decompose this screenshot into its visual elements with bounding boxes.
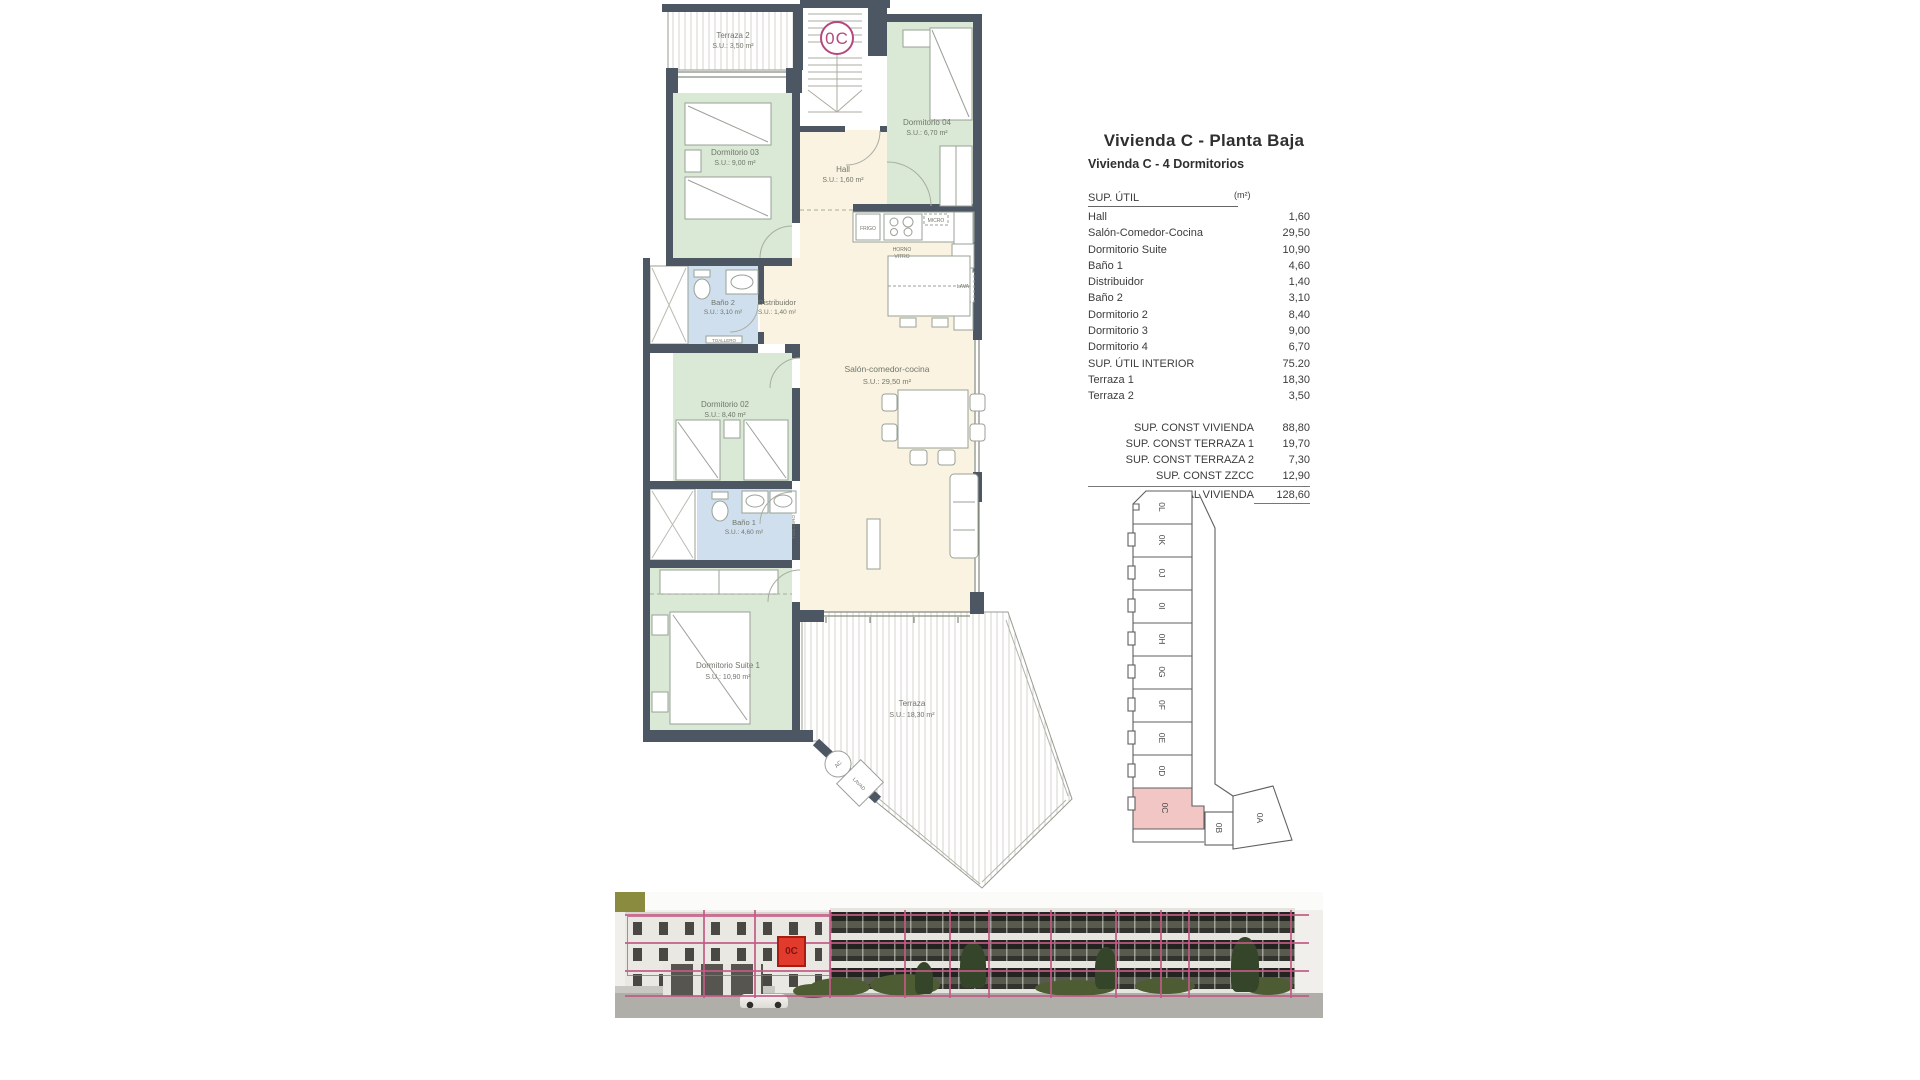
overlay-unit-line bbox=[1050, 910, 1052, 998]
hall-area: S.U.: 1,60 m² bbox=[822, 177, 864, 184]
header-label: SUP. ÚTIL bbox=[1088, 192, 1238, 207]
overlay-unit-line bbox=[988, 910, 990, 998]
unit-label: 0F bbox=[1157, 700, 1167, 710]
terraza2-name: Terraza 2 bbox=[716, 31, 750, 40]
overlay-floor-line bbox=[625, 970, 1309, 972]
terraza1-area: S.U.: 18,30 m² bbox=[889, 712, 935, 719]
unit-label: 0L bbox=[1157, 502, 1167, 512]
floor-plan-drawing: 0C bbox=[640, 0, 1085, 900]
summary-label: SUP. CONST ZZCC bbox=[1088, 468, 1254, 484]
summary-row: SUP. CONST TERRAZA 119,70 bbox=[1088, 436, 1310, 452]
building-photo: 0C bbox=[615, 892, 1323, 1018]
row-value: 18,30 bbox=[1254, 372, 1310, 388]
row-value: 3,10 bbox=[1254, 290, 1310, 306]
row-value: 1,60 bbox=[1254, 209, 1310, 225]
row-value: 9,00 bbox=[1254, 323, 1310, 339]
summary-row: SUP. CONST ZZCC12,90 bbox=[1088, 468, 1310, 484]
bano1-name: Baño 1 bbox=[732, 518, 756, 527]
key-plan: 0L 0K 0J 0I 0H 0G 0F 0E 0D 0C 0B 0A bbox=[1125, 488, 1305, 863]
dorm02-area: S.U.: 8,40 m² bbox=[704, 412, 746, 419]
unit-label: 0J bbox=[1157, 569, 1167, 578]
summary-rows: SUP. CONST VIVIENDA88,80 SUP. CONST TERR… bbox=[1088, 420, 1310, 485]
row-value: 29,50 bbox=[1254, 225, 1310, 241]
table-row: Terraza 23,50 bbox=[1088, 388, 1310, 404]
dorm04-area: S.U.: 6,70 m² bbox=[906, 130, 948, 137]
key-plan-drawing: 0L 0K 0J 0I 0H 0G 0F 0E 0D 0C 0B 0A bbox=[1125, 488, 1305, 863]
distribuidor-name: Distribuidor bbox=[758, 298, 796, 307]
table-row: Dormitorio 28,40 bbox=[1088, 307, 1310, 323]
dorm03-area: S.U.: 9,00 m² bbox=[714, 160, 756, 167]
row-label: Terraza 1 bbox=[1088, 372, 1134, 388]
table-row: Hall1,60 bbox=[1088, 209, 1310, 225]
header-unit: (m²) bbox=[1234, 190, 1251, 200]
info-panel: Vivienda C - Planta Baja Vivienda C - 4 … bbox=[1088, 131, 1320, 504]
unit-label: 0K bbox=[1157, 535, 1167, 546]
palm-tree bbox=[915, 962, 933, 994]
summary-value: 7,30 bbox=[1254, 452, 1310, 468]
unit-badge-label: 0C bbox=[825, 29, 849, 48]
row-value: 75.20 bbox=[1254, 356, 1310, 372]
floor-plan: 0C bbox=[640, 0, 1085, 900]
toallero-bano2-label: TOALLERO bbox=[712, 338, 736, 343]
overlay-unit-line bbox=[1290, 910, 1292, 998]
hall-name: Hall bbox=[836, 165, 850, 174]
table-row: Terraza 118,30 bbox=[1088, 372, 1310, 388]
overlay-floor-line bbox=[625, 995, 1309, 997]
unit-label: 0B bbox=[1214, 823, 1224, 834]
suite-name: Dormitorio Suite 1 bbox=[696, 661, 761, 670]
terraza2-floor bbox=[668, 10, 798, 70]
dorm03-name: Dormitorio 03 bbox=[711, 148, 760, 157]
summary-value: 19,70 bbox=[1254, 436, 1310, 452]
salon-name: Salón-comedor-cocina bbox=[844, 364, 929, 374]
row-value: 6,70 bbox=[1254, 339, 1310, 355]
terraza2-area: S.U.: 3,50 m² bbox=[712, 43, 754, 50]
palm-tree bbox=[1095, 947, 1117, 989]
summary-row: SUP. CONST TERRAZA 27,30 bbox=[1088, 452, 1310, 468]
frigo-label: FRIGO bbox=[860, 226, 876, 232]
row-label: Dormitorio 2 bbox=[1088, 307, 1148, 323]
row-value: 8,40 bbox=[1254, 307, 1310, 323]
salon-area: S.U.: 29,50 m² bbox=[863, 377, 912, 386]
summary-label: SUP. CONST TERRAZA 1 bbox=[1088, 436, 1254, 452]
unit-label-highlighted: 0C bbox=[1160, 803, 1170, 814]
table-row: SUP. ÚTIL INTERIOR75.20 bbox=[1088, 356, 1310, 372]
overlay-unit-line bbox=[1160, 910, 1162, 998]
distribuidor-area: S.U.: 1,40 m² bbox=[758, 309, 797, 316]
page-title: Vivienda C - Planta Baja bbox=[1088, 131, 1320, 151]
row-label: Baño 1 bbox=[1088, 258, 1123, 274]
ground bbox=[615, 993, 1323, 1018]
overlay-unit-line bbox=[1115, 910, 1117, 998]
unit-label: 0G bbox=[1157, 666, 1167, 677]
overlay-unit-line bbox=[703, 910, 705, 998]
row-label: Salón-Comedor-Cocina bbox=[1088, 225, 1203, 241]
row-value: 10,90 bbox=[1254, 242, 1310, 258]
row-value: 1,40 bbox=[1254, 274, 1310, 290]
dorm04-name: Dormitorio 04 bbox=[903, 118, 952, 127]
lava-label: LAVA bbox=[957, 284, 970, 290]
page: 0C bbox=[0, 0, 1920, 1080]
table-row: Dormitorio Suite10,90 bbox=[1088, 242, 1310, 258]
table-row: Baño 23,10 bbox=[1088, 290, 1310, 306]
summary-row: SUP. CONST VIVIENDA88,80 bbox=[1088, 420, 1310, 436]
vegetation-patch-left bbox=[615, 892, 645, 912]
overlay-unit-line bbox=[1188, 910, 1190, 998]
table-row: Dormitorio 46,70 bbox=[1088, 339, 1310, 355]
summary-value: 12,90 bbox=[1254, 468, 1310, 484]
horno-label: HORNO bbox=[893, 247, 912, 253]
bano1-area: S.U.: 4,60 m² bbox=[725, 529, 764, 536]
summary-value: 88,80 bbox=[1254, 420, 1310, 436]
table-row: Salón-Comedor-Cocina29,50 bbox=[1088, 225, 1310, 241]
unit-label: 0I bbox=[1157, 602, 1167, 609]
page-subtitle: Vivienda C - 4 Dormitorios bbox=[1088, 157, 1320, 171]
overlay-unit-line bbox=[949, 910, 951, 998]
key-plan-outline bbox=[1128, 491, 1292, 849]
area-table: SUP. ÚTIL (m²) Hall1,60 Salón-Comedor-Co… bbox=[1088, 192, 1310, 504]
overlay-unit-line bbox=[904, 910, 906, 998]
row-label: Dormitorio 4 bbox=[1088, 339, 1148, 355]
summary-label: SUP. CONST TERRAZA 2 bbox=[1088, 452, 1254, 468]
row-value: 3,50 bbox=[1254, 388, 1310, 404]
overlay-floor-line bbox=[625, 914, 1309, 916]
terraza1-name: Terraza bbox=[899, 699, 926, 708]
toallero-bano1-label: TOALLERO bbox=[791, 515, 796, 539]
row-label: Baño 2 bbox=[1088, 290, 1123, 306]
terraza1-floor bbox=[802, 612, 1072, 888]
row-label: Dormitorio 3 bbox=[1088, 323, 1148, 339]
row-value: 4,60 bbox=[1254, 258, 1310, 274]
suite-area: S.U.: 10,90 m² bbox=[705, 674, 751, 681]
palm-tree bbox=[1231, 937, 1259, 992]
unit-label: 0E bbox=[1157, 733, 1167, 744]
dorm02-name: Dormitorio 02 bbox=[701, 400, 750, 409]
row-label: SUP. ÚTIL INTERIOR bbox=[1088, 356, 1194, 372]
area-table-header: SUP. ÚTIL (m²) bbox=[1088, 192, 1310, 209]
row-label: Terraza 2 bbox=[1088, 388, 1134, 404]
overlay-floor-line bbox=[625, 942, 1309, 944]
table-row: Dormitorio 39,00 bbox=[1088, 323, 1310, 339]
bush bbox=[1135, 978, 1195, 994]
palm-tree bbox=[960, 942, 986, 988]
micro-label: MICRO bbox=[928, 218, 945, 224]
unit-label: 0A bbox=[1255, 813, 1265, 824]
row-label: Dormitorio Suite bbox=[1088, 242, 1167, 258]
unit-location-marker: 0C bbox=[777, 936, 806, 967]
bano2-name: Baño 2 bbox=[711, 298, 735, 307]
unit-label: 0D bbox=[1157, 766, 1167, 777]
unit-label: 0H bbox=[1157, 634, 1167, 645]
table-row: Distribuidor1,40 bbox=[1088, 274, 1310, 290]
row-label: Distribuidor bbox=[1088, 274, 1144, 290]
overlay-unit-line bbox=[754, 910, 756, 998]
overlay-unit-line bbox=[829, 910, 831, 998]
summary-label: SUP. CONST VIVIENDA bbox=[1088, 420, 1254, 436]
vitro-label: VITRO bbox=[894, 254, 909, 260]
row-label: Hall bbox=[1088, 209, 1107, 225]
table-row: Baño 14,60 bbox=[1088, 258, 1310, 274]
bano2-area: S.U.: 3,10 m² bbox=[704, 309, 743, 316]
